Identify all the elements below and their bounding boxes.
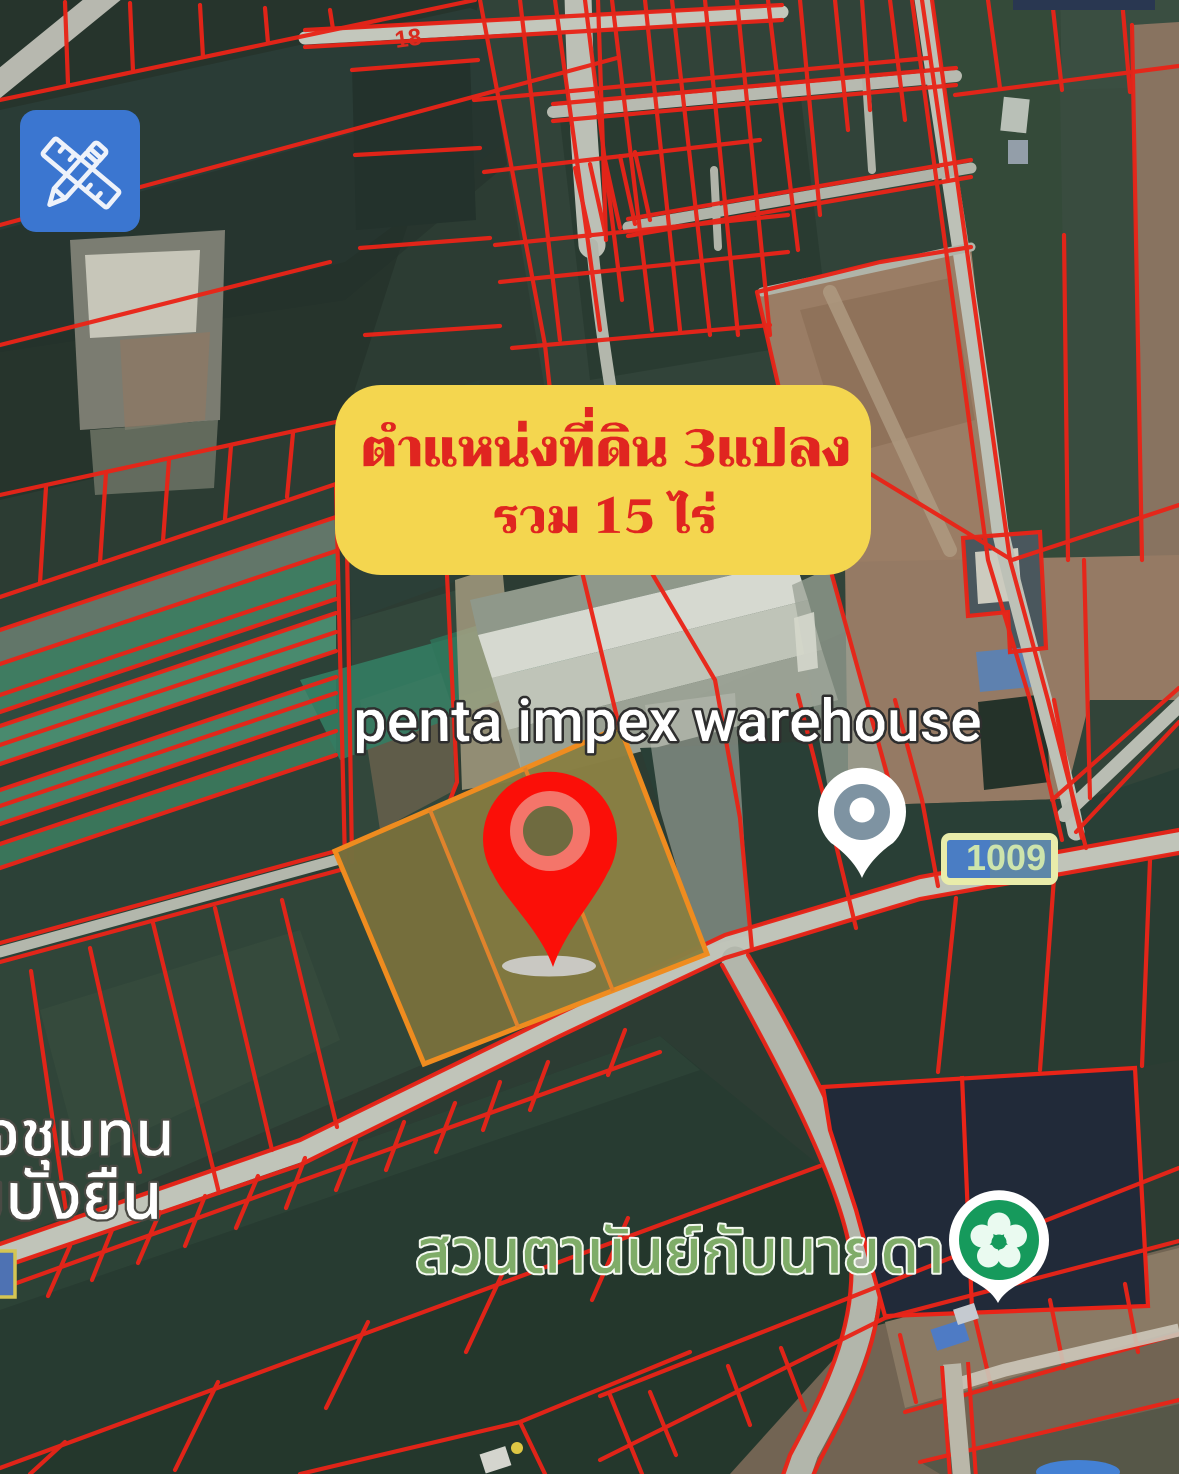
svg-text:1009: 1009 bbox=[966, 837, 1046, 878]
